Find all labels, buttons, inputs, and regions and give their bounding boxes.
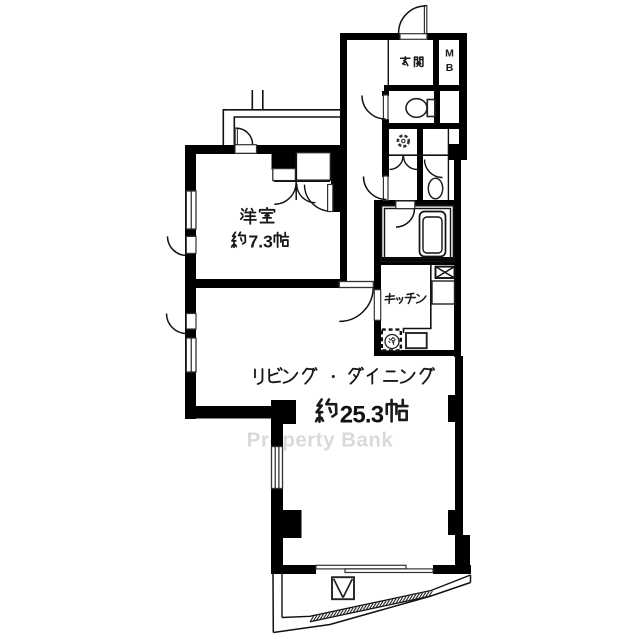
svg-text:M: M <box>445 48 454 60</box>
svg-text:B: B <box>446 62 454 74</box>
svg-text:Property Bank: Property Bank <box>247 429 394 452</box>
svg-text:7.3: 7.3 <box>249 231 274 251</box>
svg-text:25.3: 25.3 <box>340 401 384 428</box>
